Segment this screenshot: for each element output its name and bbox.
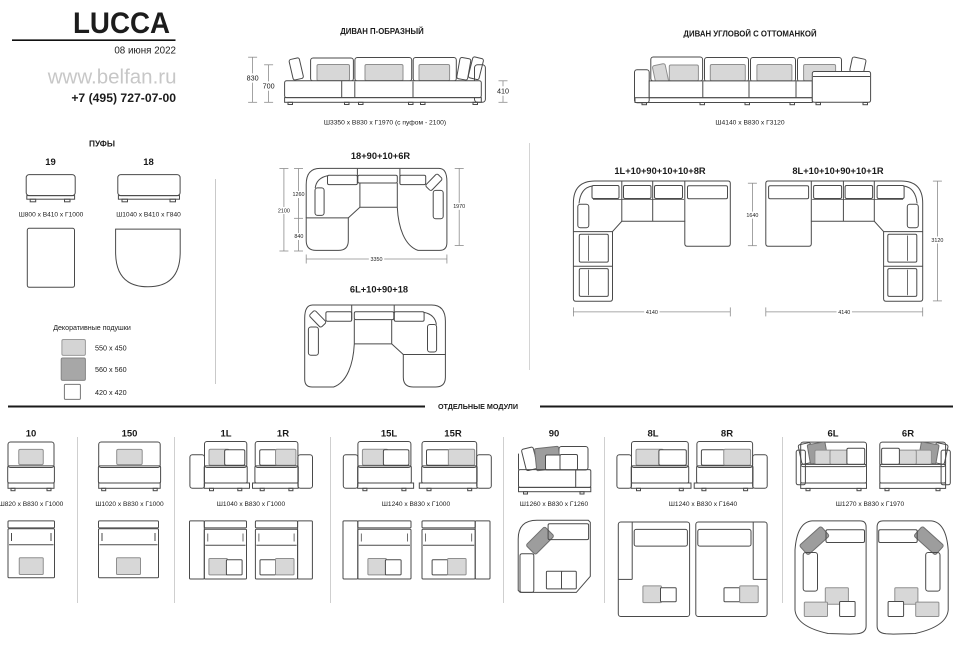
- svg-text:18: 18: [143, 157, 154, 168]
- svg-text:Ш800 х В410 х Г1000: Ш800 х В410 х Г1000: [19, 212, 84, 219]
- svg-text:Декоративные подушки: Декоративные подушки: [53, 324, 131, 332]
- svg-text:1640: 1640: [746, 213, 758, 219]
- svg-text:6L: 6L: [827, 429, 838, 440]
- svg-text:6L+10+90+18: 6L+10+90+18: [350, 285, 408, 295]
- svg-text:4140: 4140: [646, 310, 658, 316]
- svg-text:1R: 1R: [277, 429, 289, 440]
- svg-text:Ш1270 х В830 х Г1970: Ш1270 х В830 х Г1970: [836, 501, 905, 508]
- svg-text:90: 90: [549, 429, 560, 440]
- svg-text:8L: 8L: [647, 429, 658, 440]
- svg-text:08 июня 2022: 08 июня 2022: [114, 46, 176, 57]
- svg-text:3350: 3350: [371, 257, 383, 263]
- svg-text:19: 19: [45, 157, 56, 168]
- svg-text:ДИВАН П-ОБРАЗНЫЙ: ДИВАН П-ОБРАЗНЫЙ: [340, 27, 424, 36]
- svg-text:Ш820 х В830 х Г1000: Ш820 х В830 х Г1000: [0, 501, 64, 508]
- svg-text:4140: 4140: [838, 310, 850, 316]
- svg-text:8L+10+10+90+10+1R: 8L+10+10+90+10+1R: [792, 166, 884, 176]
- svg-text:420 х 420: 420 х 420: [95, 388, 127, 397]
- svg-text:15L: 15L: [381, 429, 398, 440]
- svg-text:18+90+10+6R: 18+90+10+6R: [351, 151, 410, 161]
- svg-text:ОТДЕЛЬНЫЕ МОДУЛИ: ОТДЕЛЬНЫЕ МОДУЛИ: [438, 402, 518, 411]
- svg-text:10: 10: [26, 429, 37, 440]
- svg-text:1L: 1L: [220, 429, 231, 440]
- svg-text:ДИВАН УГЛОВОЙ С ОТТОМАНКОЙ: ДИВАН УГЛОВОЙ С ОТТОМАНКОЙ: [683, 30, 817, 39]
- svg-text:1970: 1970: [453, 204, 465, 210]
- svg-text:Ш1260 х В830 х Г1260: Ш1260 х В830 х Г1260: [520, 501, 589, 508]
- svg-text:8R: 8R: [721, 429, 733, 440]
- svg-text:6R: 6R: [902, 429, 914, 440]
- svg-text:Ш3350 х В830 х Г1970 (с пуфом: Ш3350 х В830 х Г1970 (с пуфом - 2100): [324, 120, 446, 127]
- svg-text:Ш4140 х В830 х Г3120: Ш4140 х В830 х Г3120: [715, 120, 785, 127]
- svg-text:LUCCA: LUCCA: [73, 7, 170, 40]
- svg-text:150: 150: [122, 429, 138, 440]
- svg-text:1260: 1260: [293, 192, 305, 198]
- svg-text:Ш1040 х В410 х Г840: Ш1040 х В410 х Г840: [116, 212, 181, 219]
- svg-text:ПУФЫ: ПУФЫ: [89, 139, 115, 149]
- svg-text:3120: 3120: [931, 238, 943, 244]
- svg-text:830: 830: [247, 74, 259, 83]
- svg-text:Ш1240 х В830 х Г1000: Ш1240 х В830 х Г1000: [382, 501, 451, 508]
- svg-text:Ш1020 х В830 х Г1000: Ш1020 х В830 х Г1000: [95, 501, 164, 508]
- svg-text:+7 (495) 727-07-00: +7 (495) 727-07-00: [71, 91, 176, 105]
- svg-text:2100: 2100: [278, 208, 290, 214]
- svg-text:700: 700: [263, 82, 275, 91]
- svg-text:Ш1040 х В830 х Г1000: Ш1040 х В830 х Г1000: [217, 501, 286, 508]
- svg-text:410: 410: [497, 87, 509, 96]
- svg-text:Ш1240 х В830 х Г1640: Ш1240 х В830 х Г1640: [669, 501, 738, 508]
- svg-text:840: 840: [294, 234, 303, 240]
- svg-text:550 х 450: 550 х 450: [95, 344, 127, 353]
- svg-text:15R: 15R: [444, 429, 462, 440]
- svg-text:560 х 560: 560 х 560: [95, 365, 127, 374]
- svg-text:www.belfan.ru: www.belfan.ru: [47, 66, 177, 89]
- svg-text:1L+10+90+10+10+8R: 1L+10+90+10+10+8R: [614, 166, 706, 176]
